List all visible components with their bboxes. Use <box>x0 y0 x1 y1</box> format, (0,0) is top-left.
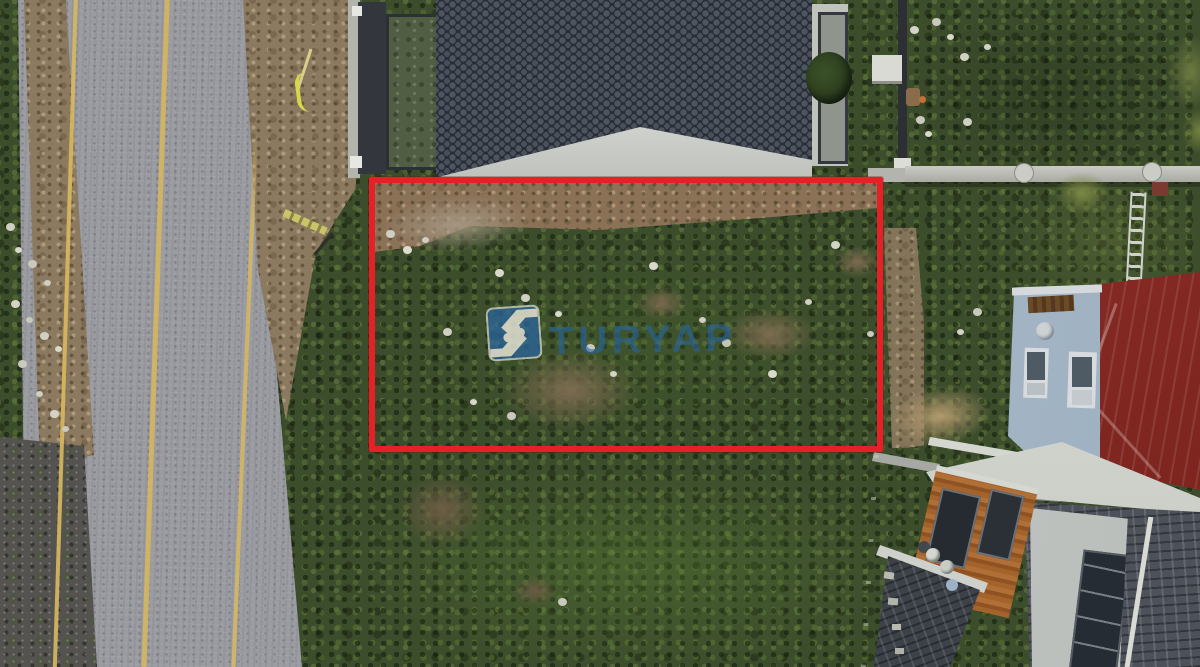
blue-bucket <box>946 579 958 591</box>
stepping-stone <box>892 624 901 630</box>
cardboard-litter <box>906 88 920 106</box>
dirt-patch-below <box>398 474 486 546</box>
orange-litter <box>919 96 926 103</box>
garden-tree <box>806 52 852 104</box>
rooftop-box <box>872 55 902 84</box>
aerial-photo: TURYAP <box>0 0 1200 667</box>
paint-bucket <box>926 548 940 562</box>
brick-object <box>1152 182 1168 196</box>
wall-post-cap <box>1142 162 1162 182</box>
wall-bracket <box>350 156 362 168</box>
stepping-stone <box>884 571 895 579</box>
wood-debris <box>1028 295 1075 313</box>
satellite-dish <box>1036 322 1054 340</box>
stepping-stone <box>895 648 904 654</box>
yellow-bush <box>1054 172 1110 214</box>
stepping-stone <box>888 598 898 606</box>
window-pane <box>1072 357 1092 387</box>
villa-courtyard-wall <box>358 2 386 174</box>
window-pane <box>1027 352 1045 380</box>
window-sill <box>1072 390 1092 405</box>
wall-bracket <box>352 6 362 16</box>
watermark: TURYAP <box>487 304 767 382</box>
debris-specks <box>0 0 5 4</box>
paint-bucket <box>940 560 954 574</box>
window-sill <box>1027 383 1045 395</box>
dirt-patch-below <box>512 576 558 606</box>
watermark-text: TURYAP <box>549 316 737 364</box>
wall-post-cap <box>1014 163 1034 183</box>
dark-window <box>976 489 1024 561</box>
handshake-icon <box>485 304 543 362</box>
villa-courtyard <box>386 14 442 170</box>
